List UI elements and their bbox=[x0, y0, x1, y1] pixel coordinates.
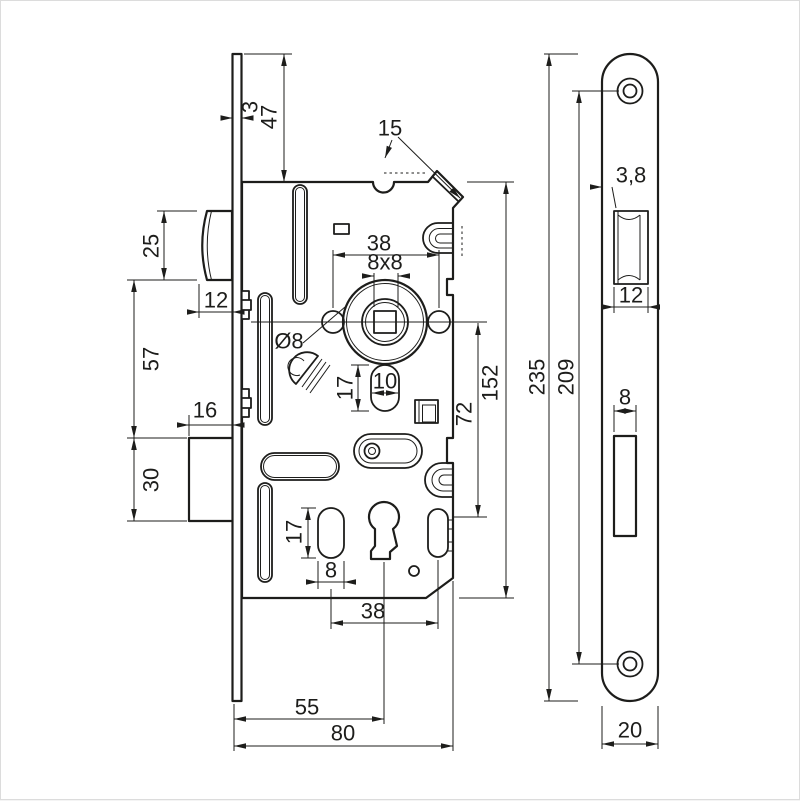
dim-follower-to-key-label: 72 bbox=[452, 402, 477, 426]
faceplate-side bbox=[233, 54, 242, 701]
dim-bolt-cut-width-label: 8 bbox=[619, 385, 631, 410]
dim-latch-cut-offset-label: 3,8 bbox=[616, 163, 647, 188]
dim-latch-height-label: 25 bbox=[139, 234, 164, 258]
dim-hub-slot-width-label: 10 bbox=[373, 369, 397, 394]
dim-key-slot-width-label: 8 bbox=[325, 558, 337, 583]
lock-technical-drawing: 3 47 25 12 57 bbox=[1, 1, 800, 801]
faceplate-front bbox=[602, 54, 658, 701]
dim-case-height-label: 152 bbox=[478, 365, 503, 402]
dim-hub-slot-width: 10 bbox=[372, 369, 398, 394]
dim-case-depth-label: 80 bbox=[331, 721, 355, 746]
dim-pin-diameter-label: Ø8 bbox=[274, 329, 303, 354]
dim-hub-slot-height-label: 17 bbox=[333, 376, 358, 400]
drawing-canvas: 3 47 25 12 57 bbox=[0, 0, 800, 800]
dim-latch-to-deadbolt-label: 57 bbox=[139, 347, 164, 371]
dim-latch-protrusion-label: 12 bbox=[204, 288, 228, 313]
front-view bbox=[602, 54, 658, 701]
dim-faceplate-width: 20 bbox=[602, 706, 658, 749]
dim-deadbolt-protrusion-label: 16 bbox=[193, 398, 217, 423]
dim-follower-to-key: 72 bbox=[452, 323, 488, 517]
dim-backset-label: 55 bbox=[295, 695, 319, 720]
dim-latch-height: 25 bbox=[127, 211, 197, 280]
dim-deadbolt-height-label: 30 bbox=[139, 468, 164, 492]
dim-latch-cut-width-label: 12 bbox=[619, 283, 643, 308]
dim-key-span-label: 38 bbox=[361, 599, 385, 624]
dim-spindle-square-label: 8x8 bbox=[367, 250, 402, 275]
dim-plate-top-to-case-label: 47 bbox=[257, 105, 282, 129]
dim-deadbolt-height: 30 bbox=[127, 438, 187, 521]
dim-case-depth: 80 bbox=[234, 581, 453, 751]
dim-case-height: 152 bbox=[459, 182, 514, 598]
dim-latch-to-deadbolt: 57 bbox=[127, 280, 187, 438]
dim-key-slot-height-label: 17 bbox=[282, 520, 307, 544]
dim-corner-tab-label: 15 bbox=[378, 116, 402, 141]
dim-screw-spacing-label: 209 bbox=[554, 359, 579, 396]
dim-faceplate-length-label: 235 bbox=[525, 359, 550, 396]
dim-faceplate-width-label: 20 bbox=[618, 718, 642, 743]
